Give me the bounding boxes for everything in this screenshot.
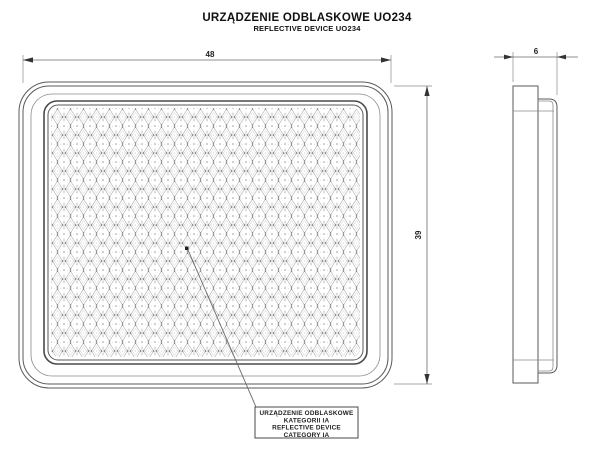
prism-pattern-area — [51, 108, 360, 357]
depth-value: 6 — [534, 47, 539, 56]
dimension-width: 48 — [23, 50, 391, 83]
arrowhead-right-icon — [381, 57, 391, 62]
side-body-outline — [513, 86, 538, 383]
side-view — [513, 86, 557, 383]
width-value: 48 — [206, 50, 215, 59]
technical-drawing-canvas: URZĄDZENIE ODBLASKOWE UO234 REFLECTIVE D… — [0, 0, 600, 465]
height-value: 39 — [414, 230, 423, 239]
callout-line-2: KATEGORII IA — [284, 417, 330, 424]
arrowhead-down-icon — [424, 374, 429, 384]
drawing-title: URZĄDZENIE ODBLASKOWE UO234 — [202, 12, 412, 24]
side-lens-outline — [538, 99, 557, 373]
technical-drawing-sheet: URZĄDZENIE ODBLASKOWE UO234 REFLECTIVE D… — [0, 0, 600, 465]
dimension-depth: 6 — [494, 47, 578, 95]
arrowhead-inward-right-icon — [557, 55, 566, 60]
callout-anchor-dot — [185, 247, 189, 251]
callout-line-1: URZĄDZENIE ODBLASKOWE — [259, 410, 354, 417]
callout-line-4: CATEGORY IA — [284, 432, 330, 439]
side-lens-inner-line — [538, 101, 553, 371]
callout-line-3: REFLECTIVE DEVICE — [272, 425, 341, 432]
arrowhead-up-icon — [424, 86, 429, 96]
dimension-height: 39 — [394, 86, 432, 384]
drawing-subtitle: REFLECTIVE DEVICE UO234 — [253, 24, 361, 33]
front-view — [19, 82, 392, 388]
arrowhead-left-icon — [23, 57, 33, 62]
arrowhead-inward-left-icon — [504, 55, 513, 60]
